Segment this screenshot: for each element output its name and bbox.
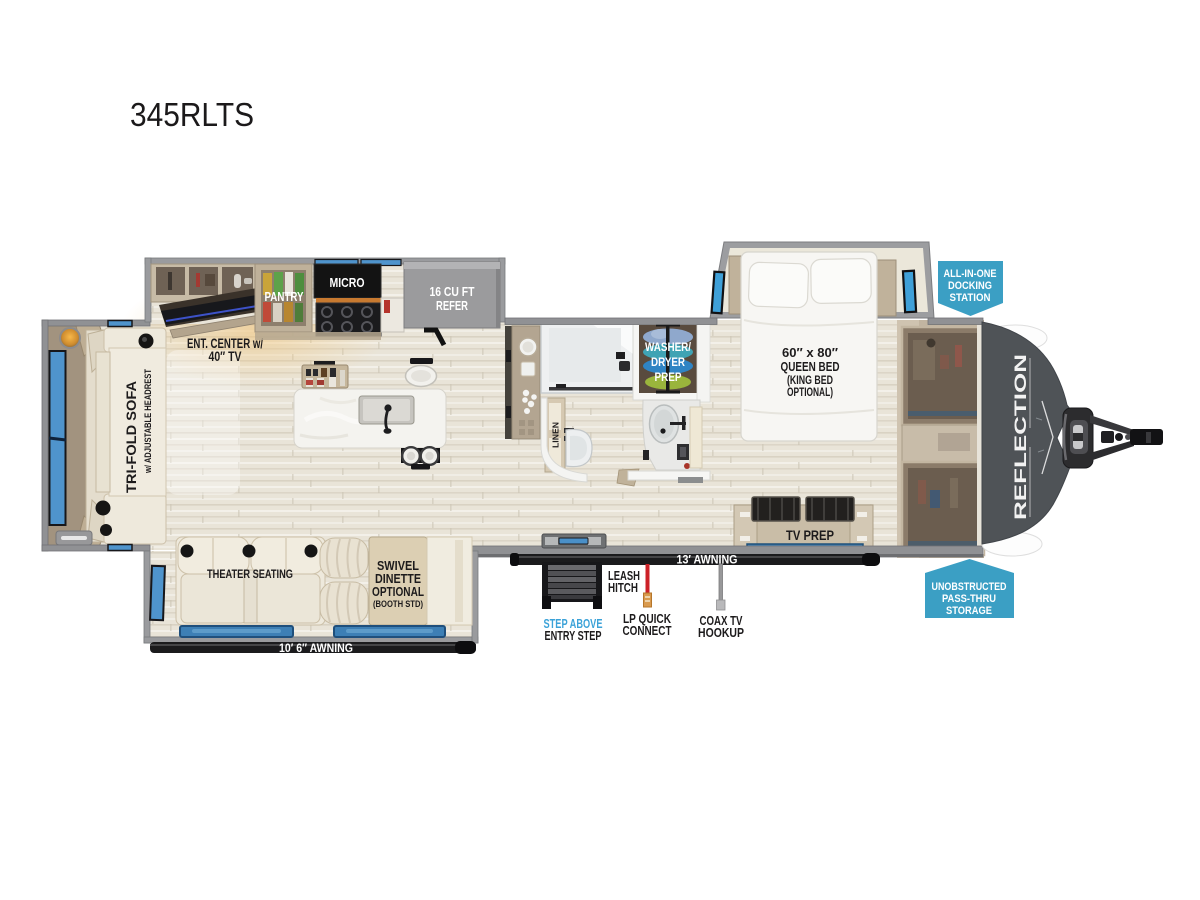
svg-text:ALL-IN-ONE: ALL-IN-ONE — [944, 268, 997, 280]
svg-text:SWIVEL: SWIVEL — [377, 559, 419, 573]
svg-text:PANTRY: PANTRY — [265, 290, 305, 304]
svg-text:WASHER/: WASHER/ — [645, 340, 692, 354]
svg-text:STATION: STATION — [950, 292, 991, 304]
svg-text:THEATER SEATING: THEATER SEATING — [207, 567, 293, 581]
svg-text:HITCH: HITCH — [608, 581, 638, 595]
svg-text:HOOKUP: HOOKUP — [698, 626, 744, 640]
svg-text:16 CU FT: 16 CU FT — [430, 285, 475, 299]
svg-text:CONNECT: CONNECT — [623, 624, 672, 638]
svg-text:ENTRY STEP: ENTRY STEP — [545, 629, 602, 643]
svg-text:MICRO: MICRO — [330, 275, 365, 290]
svg-text:REFLECTION: REFLECTION — [1012, 354, 1030, 520]
svg-text:UNOBSTRUCTED: UNOBSTRUCTED — [932, 581, 1007, 593]
svg-text:(KING BED: (KING BED — [787, 375, 833, 387]
svg-text:PASS-THRU: PASS-THRU — [942, 593, 996, 605]
svg-text:40″ TV: 40″ TV — [209, 349, 242, 364]
svg-text:OPTIONAL): OPTIONAL) — [787, 387, 833, 399]
svg-text:LINEN: LINEN — [552, 422, 561, 448]
svg-text:PREP: PREP — [655, 370, 682, 384]
svg-text:w/ ADJUSTABLE HEADREST: w/ ADJUSTABLE HEADREST — [143, 369, 153, 474]
svg-text:DOCKING: DOCKING — [948, 280, 992, 292]
svg-text:60″ x 80″: 60″ x 80″ — [782, 345, 838, 360]
svg-text:DRYER: DRYER — [651, 355, 685, 369]
svg-text:DINETTE: DINETTE — [375, 572, 421, 586]
svg-text:TV PREP: TV PREP — [786, 528, 834, 543]
svg-text:STORAGE: STORAGE — [946, 605, 992, 617]
svg-text:TRI-FOLD SOFA: TRI-FOLD SOFA — [124, 381, 139, 493]
svg-text:REFER: REFER — [436, 299, 468, 313]
svg-text:345RLTS: 345RLTS — [130, 96, 254, 133]
svg-text:QUEEN BED: QUEEN BED — [781, 359, 840, 374]
svg-text:13′ AWNING: 13′ AWNING — [677, 553, 738, 567]
svg-text:(BOOTH STD): (BOOTH STD) — [373, 599, 423, 610]
svg-text:10′ 6″ AWNING: 10′ 6″ AWNING — [279, 641, 353, 655]
svg-text:OPTIONAL: OPTIONAL — [372, 585, 424, 599]
